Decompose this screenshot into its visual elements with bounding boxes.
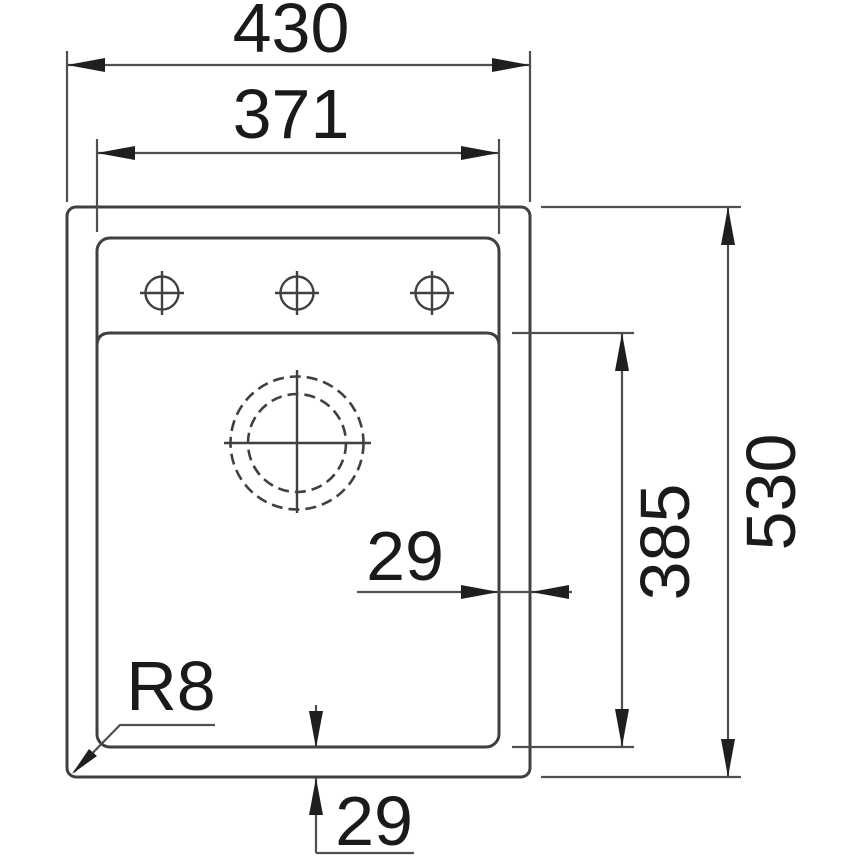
arrowhead-down — [309, 711, 323, 748]
dimension-label: 385 — [626, 484, 704, 601]
bowl-top-edge — [97, 333, 499, 346]
sink-technical-drawing: 430 371 530 385 — [0, 0, 860, 860]
faucet-hole-icon — [410, 271, 454, 315]
faucet-hole-icon — [275, 271, 319, 315]
arrowhead-bottom — [615, 709, 629, 747]
arrowhead-left — [97, 146, 135, 160]
arrowhead-top — [721, 207, 735, 245]
dimension-label: 530 — [732, 434, 810, 551]
dimension-label: 430 — [233, 0, 350, 67]
arrowhead-right — [461, 146, 499, 160]
arrowhead-right — [461, 585, 499, 599]
drain-icon — [224, 370, 371, 513]
dimension-bowl-height: 385 — [512, 333, 704, 747]
arrowhead-bottom — [721, 739, 735, 777]
arrowhead-top — [615, 333, 629, 371]
dimension-label: 29 — [366, 517, 444, 595]
arrowhead-left — [67, 58, 105, 72]
dimension-bottom-offset: 29 — [309, 705, 414, 860]
drawing-svg: 430 371 530 385 — [0, 0, 860, 860]
corner-radius-callout: R8 — [72, 647, 216, 774]
radius-label: R8 — [126, 647, 215, 725]
dimension-label: 29 — [335, 782, 413, 860]
dimension-right-offset: 29 — [357, 517, 572, 599]
arrowhead-up — [309, 778, 323, 815]
arrowhead-left — [531, 585, 569, 599]
faucet-hole-icon — [140, 271, 184, 315]
arrowhead-leader — [72, 749, 97, 774]
dimension-inner-width: 371 — [97, 75, 499, 234]
faucet-holes — [140, 271, 454, 315]
arrowhead-right — [492, 58, 530, 72]
dimension-label: 371 — [233, 75, 350, 153]
